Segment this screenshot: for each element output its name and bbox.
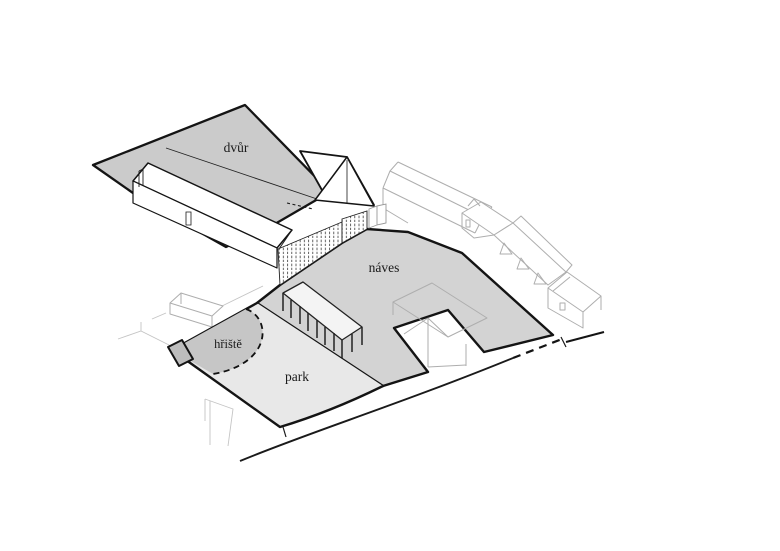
site-diagram: dvůr náves hřiště park xyxy=(0,0,780,551)
label-hriste: hřiště xyxy=(214,337,242,351)
diagram-svg: dvůr náves hřiště park xyxy=(0,0,780,551)
label-park: park xyxy=(285,369,309,384)
label-dvur: dvůr xyxy=(224,140,249,155)
label-naves: náves xyxy=(369,260,400,275)
